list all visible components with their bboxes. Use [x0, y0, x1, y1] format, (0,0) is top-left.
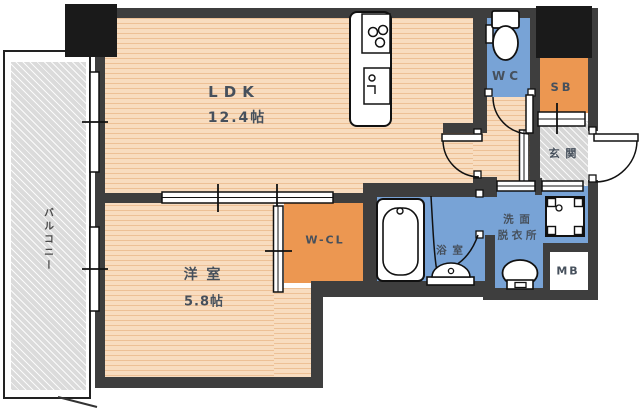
bedroom-window	[82, 227, 108, 311]
ldk-window	[82, 72, 108, 172]
genkan-label: 玄 関	[549, 145, 578, 161]
closet-label: W-CL	[305, 234, 344, 247]
ldk-label: LDK	[208, 83, 260, 101]
bathroom-door	[431, 190, 483, 272]
ldk-hall-door	[442, 129, 482, 178]
bedroom-label: 洋 室	[184, 264, 223, 284]
closet-sliding-door	[265, 206, 292, 292]
entry-door	[589, 127, 638, 182]
genkan-sliding-door	[520, 130, 530, 186]
bathtub-icon	[377, 199, 424, 281]
ldk-bedroom-sliding-door	[162, 184, 333, 212]
shoebox-front	[538, 103, 585, 134]
balcony-label: バルコニー	[40, 208, 55, 273]
stove-burners-icon	[362, 14, 390, 53]
fixtures-overlay	[0, 0, 640, 408]
bedroom-size: 5.8帖	[184, 291, 224, 310]
toilet-icon	[486, 11, 519, 60]
wc-door	[485, 89, 535, 134]
bath-washbasin-icon	[427, 263, 474, 285]
bathroom-label: 浴 室	[436, 243, 464, 258]
genkan-threshold	[542, 181, 583, 191]
washroom-label-1: 洗 面	[503, 212, 531, 227]
balcony-corner-line	[58, 397, 97, 407]
floor-plan: LDK 12.4帖 洋 室 5.8帖 W-CL WC SB 玄 関 浴 室 洗 …	[0, 0, 640, 408]
mb-label: MB	[556, 265, 579, 278]
washroom-sliding-door	[497, 181, 535, 191]
washing-machine-pan-icon	[546, 197, 584, 236]
washroom-label-2: 脱 衣 所	[498, 228, 537, 243]
vanity-sink-icon	[503, 260, 538, 289]
wc-label: WC	[492, 69, 522, 83]
ldk-size: 12.4帖	[208, 107, 267, 127]
kitchen-sink-icon	[364, 68, 390, 104]
sb-label: SB	[550, 80, 573, 94]
